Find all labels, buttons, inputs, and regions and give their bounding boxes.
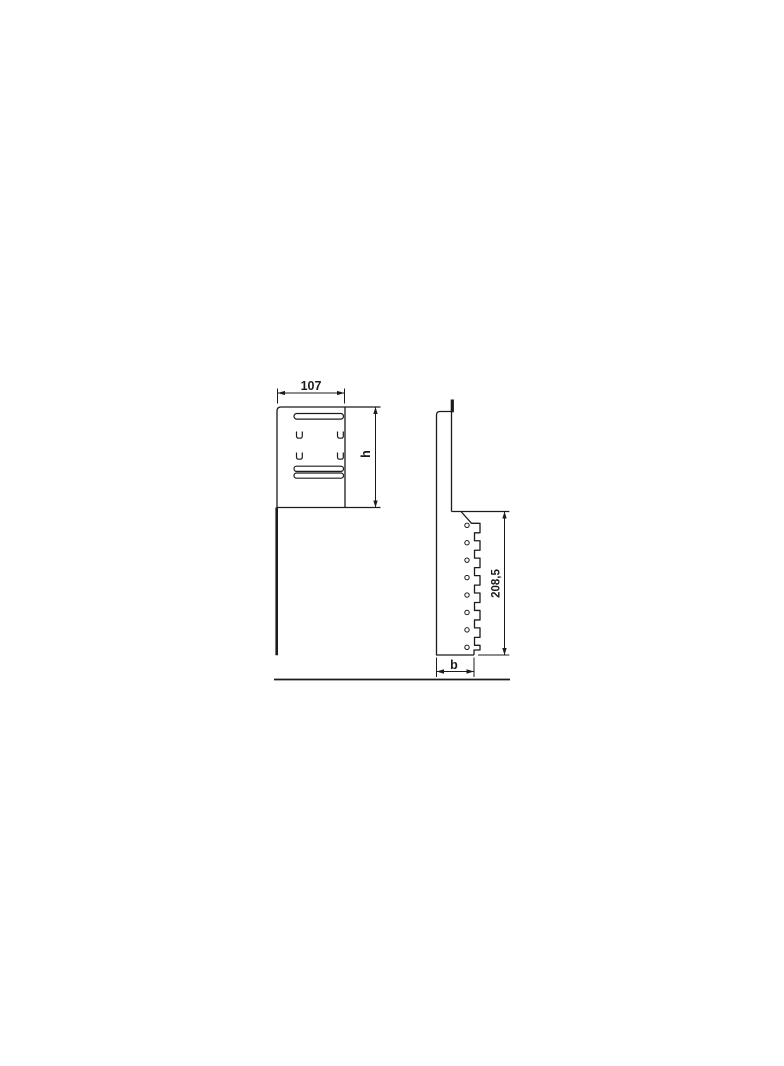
arrow-right [467,669,475,673]
dim-label-h: h [359,450,373,458]
arrow-down [502,648,506,655]
arrow-left [278,391,286,395]
hole-5 [465,593,469,597]
drawing-page: 107 h [0,0,784,1066]
u-clip-top-right [338,432,344,439]
hole-3 [465,558,469,562]
hole-7 [465,628,469,632]
stepped-edge [461,512,480,656]
dim-label-b: b [450,658,458,672]
top-slot [294,414,344,420]
arrow-right [337,391,345,395]
dim-label-107: 107 [301,379,322,393]
hole-2 [465,541,469,545]
front-view [277,407,381,655]
hole-4 [465,575,469,579]
drawing-canvas: 107 h [0,0,784,1066]
side-profile-left [437,412,475,656]
dim-depth-b: b [437,658,475,678]
side-view [437,400,510,656]
dim-width-107: 107 [278,379,345,404]
dim-height-208-5: 208,5 [491,512,507,656]
arrow-up [373,407,377,414]
u-clip-top-left [297,432,303,439]
dim-label-208-5: 208,5 [491,569,503,598]
hole-8 [465,645,469,649]
u-clip-bottom-left [297,453,303,460]
arrow-down [373,501,377,508]
arrow-left [437,669,445,673]
arrow-up [502,512,506,519]
hole-6 [465,610,469,614]
bottom-slot-upper [294,466,344,471]
hole-1 [465,523,469,527]
dim-height-h: h [359,407,378,508]
u-clip-bottom-right [338,453,344,460]
bottom-slot-lower [294,473,344,478]
